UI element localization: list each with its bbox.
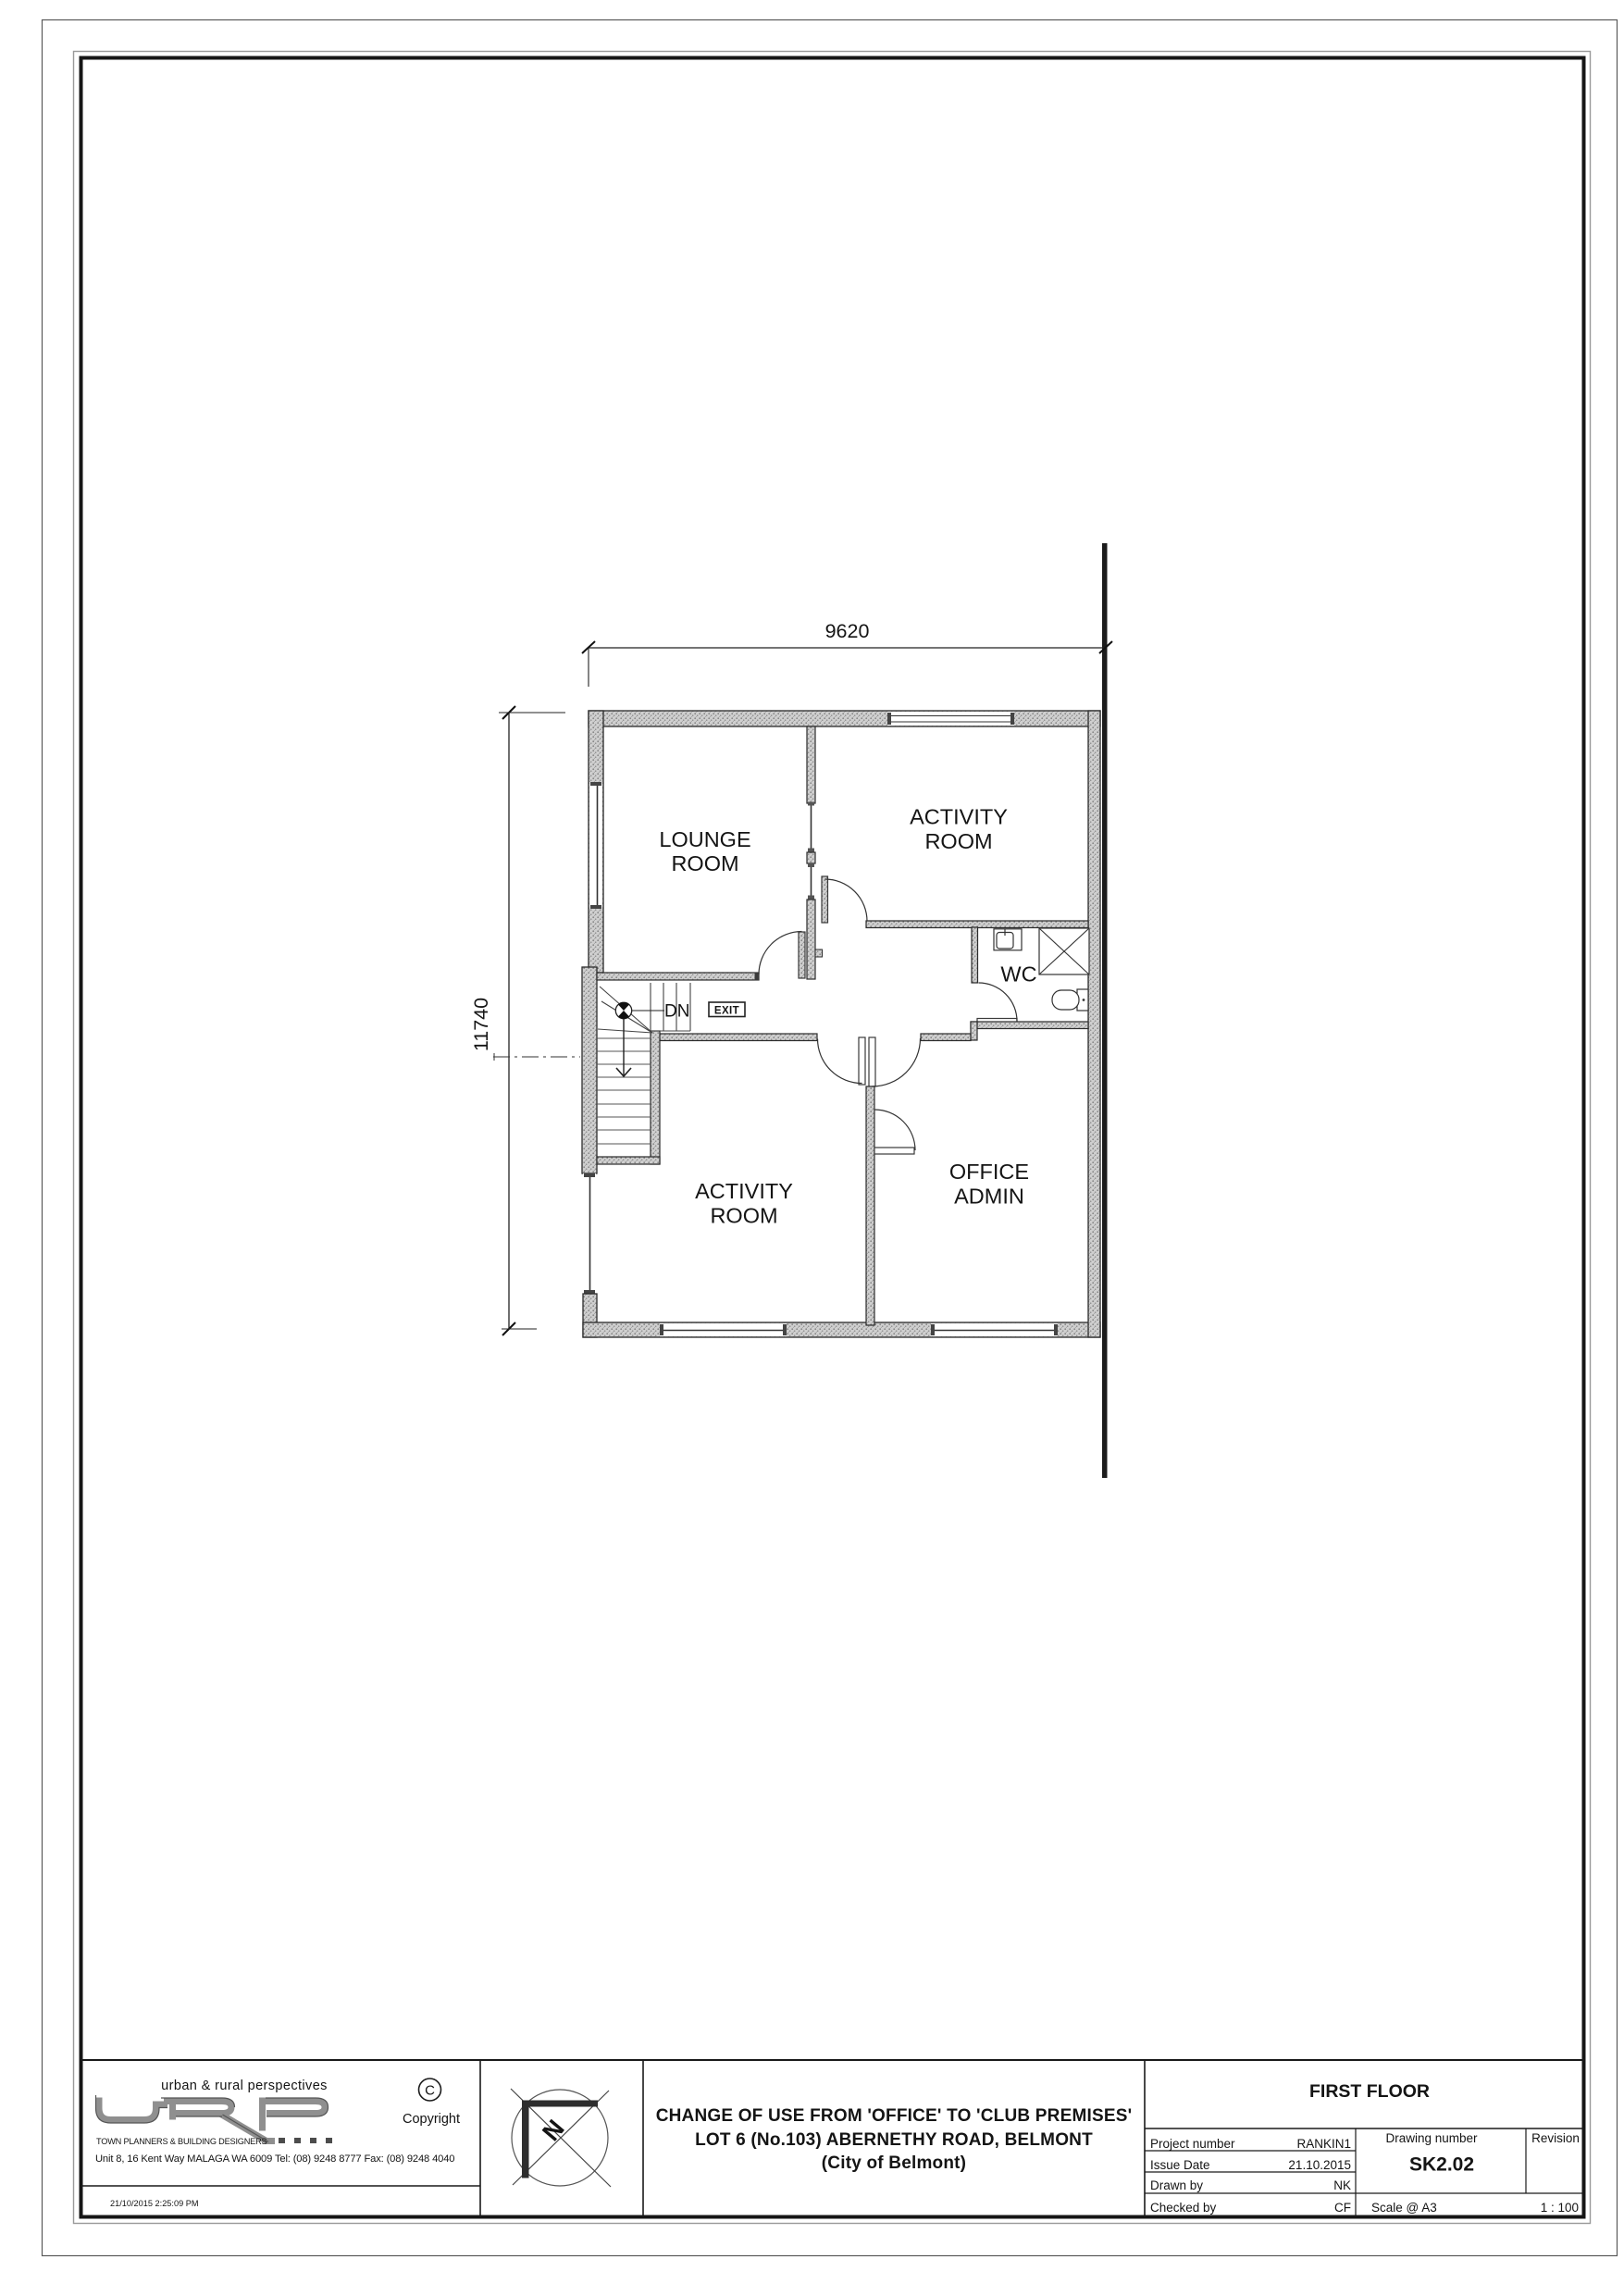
svg-text:SK2.02: SK2.02 (1409, 2154, 1474, 2176)
svg-text:(City of Belmont): (City of Belmont) (822, 2153, 966, 2173)
svg-text:ROOM: ROOM (710, 1204, 777, 1228)
svg-text:Issue Date: Issue Date (1150, 2158, 1210, 2172)
svg-text:Unit 8, 16 Kent Way MALAGA WA: Unit 8, 16 Kent Way MALAGA WA 6009 Tel: … (95, 2153, 454, 2165)
svg-text:ROOM: ROOM (924, 829, 992, 853)
svg-text:Drawn by: Drawn by (1150, 2178, 1203, 2192)
svg-text:WC: WC (1000, 962, 1036, 987)
svg-text:urban & rural perspectives: urban & rural perspectives (161, 2079, 328, 2093)
svg-text:C: C (425, 2083, 435, 2099)
svg-text:21/10/2015 2:25:09 PM: 21/10/2015 2:25:09 PM (110, 2199, 199, 2208)
svg-text:EXIT: EXIT (714, 1006, 739, 1017)
svg-text:DN: DN (664, 1002, 689, 1022)
svg-text:21.10.2015: 21.10.2015 (1288, 2158, 1351, 2172)
svg-text:NK: NK (1333, 2178, 1351, 2192)
svg-text:ACTIVITY: ACTIVITY (695, 1179, 793, 1203)
svg-text:ROOM: ROOM (671, 851, 738, 875)
svg-text:Project number: Project number (1150, 2137, 1235, 2151)
svg-text:Scale @ A3: Scale @ A3 (1371, 2201, 1437, 2215)
svg-text:RANKIN1: RANKIN1 (1296, 2137, 1351, 2151)
svg-text:LOT 6 (No.103) ABERNETHY ROAD,: LOT 6 (No.103) ABERNETHY ROAD, BELMONT (695, 2130, 1093, 2150)
svg-text:11740: 11740 (470, 998, 492, 1051)
svg-text:LOUNGE: LOUNGE (659, 827, 750, 851)
svg-text:CHANGE OF USE FROM 'OFFICE' TO: CHANGE OF USE FROM 'OFFICE' TO 'CLUB PRE… (656, 2106, 1133, 2126)
svg-text:Copyright: Copyright (403, 2112, 460, 2127)
svg-text:ACTIVITY: ACTIVITY (910, 805, 1008, 829)
svg-text:Checked by: Checked by (1150, 2201, 1217, 2215)
svg-text:Drawing number: Drawing number (1385, 2131, 1478, 2145)
svg-text:Revision: Revision (1531, 2131, 1580, 2145)
svg-text:CF: CF (1334, 2201, 1351, 2215)
svg-text:FIRST FLOOR: FIRST FLOOR (1309, 2081, 1430, 2102)
svg-text:ADMIN: ADMIN (954, 1185, 1024, 1209)
svg-text:9620: 9620 (825, 620, 870, 642)
svg-text:OFFICE: OFFICE (949, 1160, 1029, 1184)
svg-text:1 : 100: 1 : 100 (1541, 2201, 1579, 2215)
svg-text:TOWN PLANNERS & BUILDING DESIG: TOWN PLANNERS & BUILDING DESIGNERS (96, 2137, 267, 2146)
